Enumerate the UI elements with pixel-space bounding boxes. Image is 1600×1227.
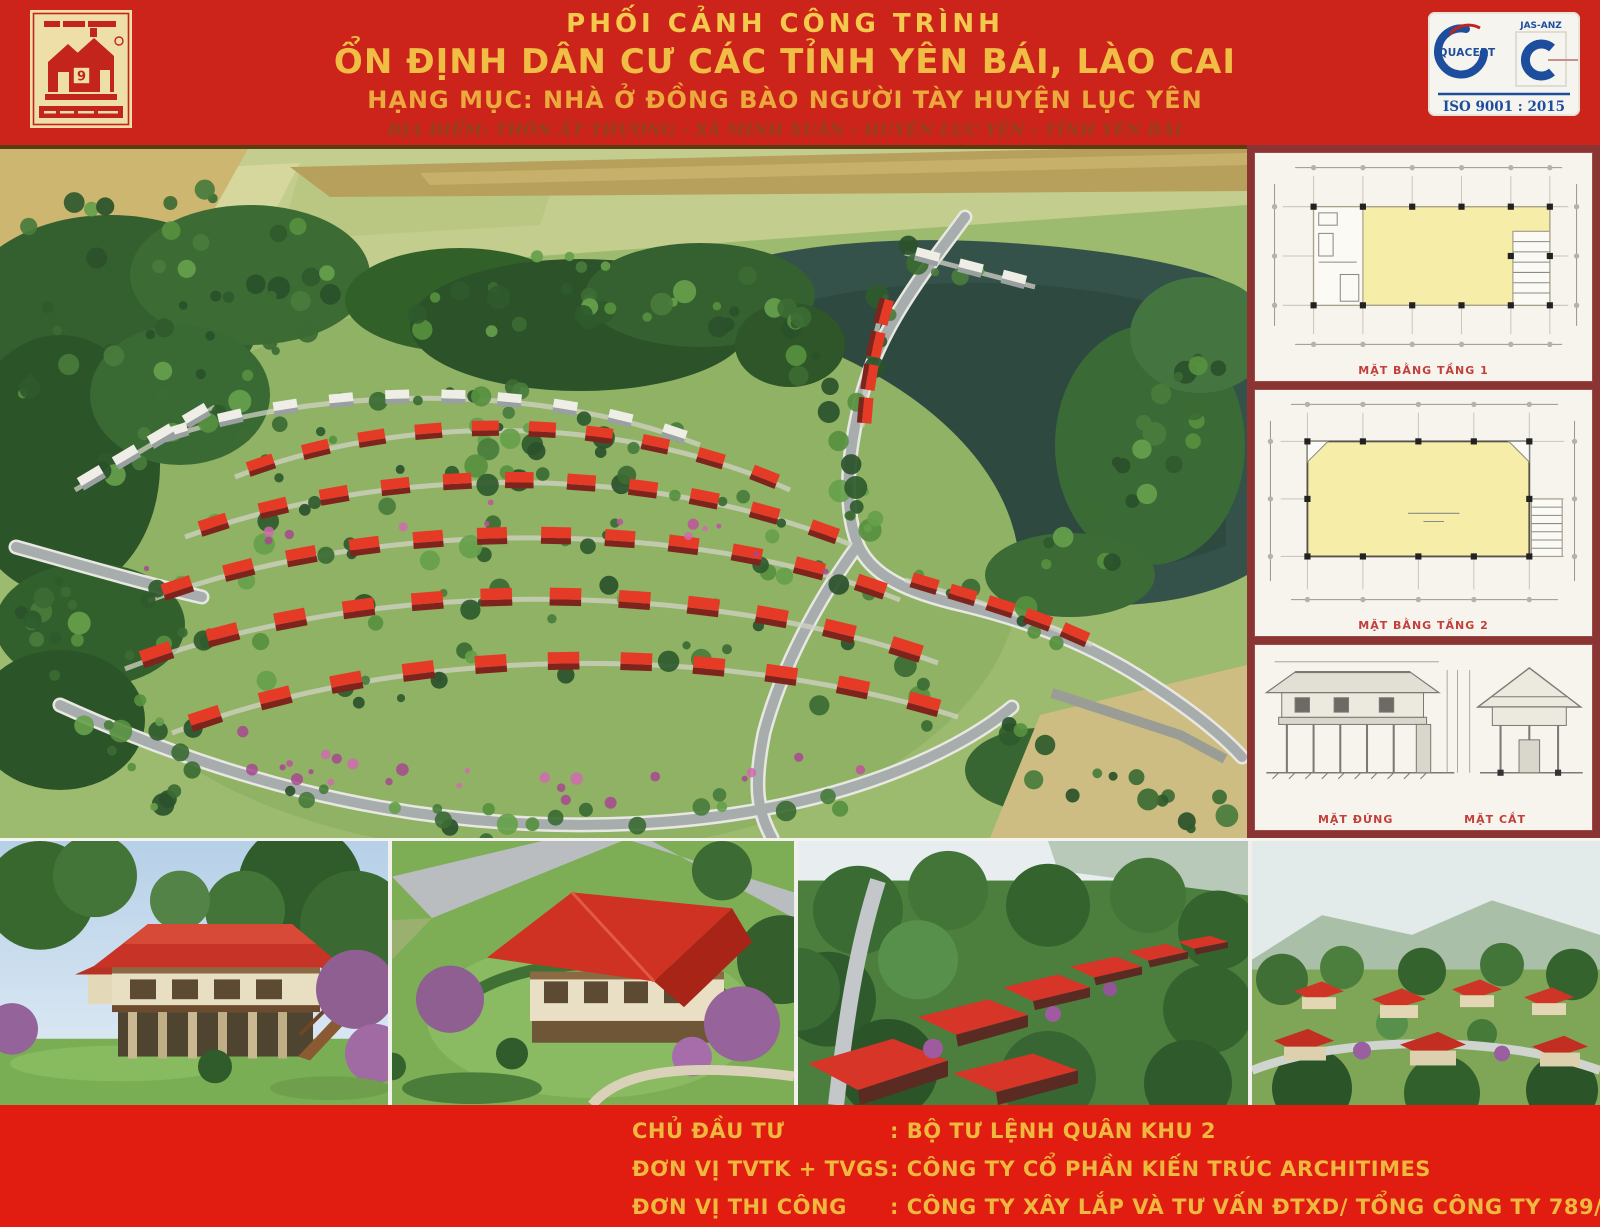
plan2-main-room [1307,441,1529,556]
credit-label: CHỦ ĐẦU TƯ [632,1119,890,1143]
quacert-logo-icon: QUACERT [1438,25,1496,74]
header-band: 9 PHỐI CẢNH CÔNG TRÌNH ỔN ĐỊNH DÂN CƯ CÁ… [0,0,1600,145]
jas-anz-logo-icon: JAS-ANZ [1516,21,1578,86]
certification-badge: QUACERT JAS-ANZ ISO 9001 : 2015 [1428,12,1580,116]
project-presentation-poster: 9 PHỐI CẢNH CÔNG TRÌNH ỔN ĐỊNH DÂN CƯ CÁ… [0,0,1600,1227]
credit-value: : BỘ TƯ LỆNH QUÂN KHU 2 [890,1119,1216,1143]
project-location: ĐỊA ĐIỂM: THÔN ẤT THƯỢNG - XÃ MINH XUÂN … [150,120,1420,139]
svg-text:9: 9 [77,70,86,85]
logo-top-text-band [44,21,116,27]
elevation-caption: MẶT ĐỨNG [1254,813,1457,826]
credit-row-contractor: ĐƠN VỊ THI CÔNG : CÔNG TY XÂY LẮP VÀ TƯ … [632,1195,1600,1219]
company-logo: 9 [30,10,132,128]
credit-value: : CÔNG TY XÂY LẮP VÀ TƯ VẤN ĐTXD/ TỔNG C… [890,1195,1600,1219]
credit-row-investor: CHỦ ĐẦU TƯ : BỘ TƯ LỆNH QUÂN KHU 2 [632,1119,1216,1143]
poster-title: ỔN ĐỊNH DÂN CƯ CÁC TỈNH YÊN BÁI, LÀO CAI [150,42,1420,82]
title-block: PHỐI CẢNH CÔNG TRÌNH ỔN ĐỊNH DÂN CƯ CÁC … [150,0,1420,139]
house-render-aerial-view [392,841,794,1105]
poster-subtitle: HẠNG MỤC: NHÀ Ở ĐỒNG BÀO NGƯỜI TÀY HUYỆN… [150,86,1420,114]
header-separator-line [0,145,1247,149]
section-caption: MẶT CẮT [1464,813,1593,826]
floor-plan-1-drawing [1254,152,1593,360]
logo-bottom-text-band [39,106,123,118]
elevation-section-panel: MẶT ĐỨNG MẶT CẮT [1254,644,1593,831]
iso-label: ISO 9001 : 2015 [1443,99,1565,115]
floor-plan-1-caption: MẶT BẰNG TẦNG 1 [1254,364,1593,377]
credit-row-design-consultant: ĐƠN VỊ TVTK + TVGS : CÔNG TY CỔ PHẦN KIẾ… [632,1157,1431,1181]
section-drawing [1478,668,1583,776]
plan1-stair [1513,231,1550,305]
credit-value: : CÔNG TY CỔ PHẦN KIẾN TRÚC ARCHITIMES [890,1157,1431,1181]
credit-label: ĐƠN VỊ TVTK + TVGS [632,1157,890,1181]
floor-plan-1-panel: MẶT BẰNG TẦNG 1 [1254,152,1593,382]
elevation-drawing [1266,672,1454,779]
elevation-section-drawing [1254,644,1593,809]
svg-text:JAS-ANZ: JAS-ANZ [1519,21,1562,31]
photo-strip [0,838,1600,1105]
svg-text:QUACERT: QUACERT [1438,47,1496,59]
floor-plan-2-panel: MẶT BẰNG TẦNG 2 [1254,389,1593,637]
floor-plan-2-drawing [1254,389,1593,615]
hillside-village-render [1252,841,1600,1105]
aerial-masterplan-render [0,145,1247,838]
footer-credits: CHỦ ĐẦU TƯ : BỘ TƯ LỆNH QUÂN KHU 2 ĐƠN V… [0,1105,1600,1227]
poster-kicker: PHỐI CẢNH CÔNG TRÌNH [150,9,1420,39]
house-row-render [798,841,1248,1105]
company-logo-graphic: 9 [30,10,132,128]
flowering-tree [416,966,484,1033]
house-render-front-view [0,841,388,1105]
drawings-sidebar: MẶT BẰNG TẦNG 1 [1247,145,1600,838]
credit-label: ĐƠN VỊ THI CÔNG [632,1195,890,1219]
floor-plan-2-caption: MẶT BẰNG TẦNG 2 [1254,619,1593,632]
